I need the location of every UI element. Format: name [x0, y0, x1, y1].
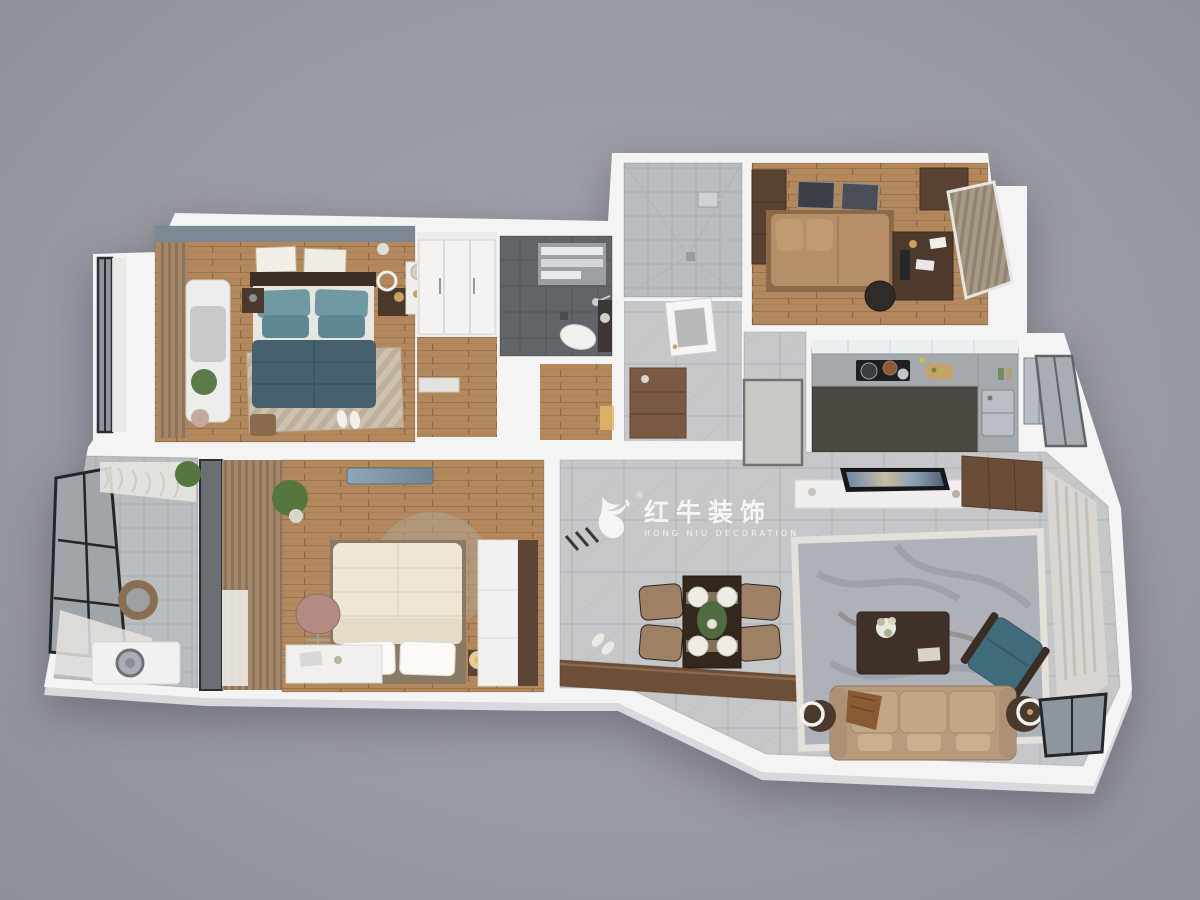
tall-cabinet: [962, 456, 1042, 512]
bottle: [998, 368, 1004, 380]
picture-frame: [304, 248, 347, 274]
vanity-sink: [598, 300, 612, 352]
three-seat-sofa: [830, 686, 1016, 760]
pouf: [191, 409, 209, 427]
plant: [175, 461, 201, 487]
duvet-fold: [333, 618, 462, 644]
window-glass: [200, 460, 222, 690]
wardrobe-doors: [419, 240, 495, 334]
sink: [600, 313, 610, 323]
bay-window: [98, 258, 126, 432]
handle: [439, 278, 441, 294]
dining-chair: [737, 583, 782, 621]
dining-chair: [737, 624, 782, 662]
sheer-curtain: [222, 590, 248, 686]
washer-drum: [125, 658, 135, 668]
shoe-cabinet: [630, 368, 686, 438]
desk-chair: [296, 594, 340, 634]
seat-pillow: [956, 734, 990, 751]
table-top: [857, 612, 949, 674]
lamp-center: [1027, 709, 1033, 715]
pillow: [775, 218, 804, 252]
faucet: [988, 396, 993, 401]
nightstand: [378, 288, 408, 316]
room-entry: [624, 298, 742, 441]
tray-decor: [641, 375, 649, 383]
air-conditioner: [347, 468, 433, 484]
desk-decor: [909, 240, 917, 248]
pillow: [805, 218, 834, 251]
picture-frame: [256, 246, 297, 272]
tan-tatami-bed: [766, 210, 894, 292]
towel: [541, 259, 603, 267]
washer-counter: [92, 642, 180, 684]
pillow-front: [262, 315, 309, 338]
pillow-front: [318, 315, 365, 338]
cooktop: [856, 360, 910, 381]
pillow: [257, 289, 311, 318]
dining-chair: [639, 624, 684, 662]
wardrobe-white: [478, 540, 518, 686]
teal-double-bed: [250, 272, 376, 408]
towel: [541, 271, 581, 279]
wardrobe-wood: [518, 540, 538, 686]
room-master-bathroom: [500, 236, 612, 356]
dining-chair: [639, 583, 684, 621]
sheer-curtain: [112, 258, 126, 432]
shower-column: [724, 226, 730, 250]
gold-decor: [394, 292, 404, 302]
chaise-bench: [186, 280, 230, 427]
pillow: [399, 641, 455, 676]
warm-light: [600, 406, 614, 430]
flowers: [888, 617, 896, 625]
towel: [541, 247, 603, 255]
plant-icon: [191, 369, 217, 395]
basket-cloth: [126, 588, 150, 612]
vanity: [598, 300, 612, 352]
apartment-render-canvas: [0, 0, 1200, 900]
side-table-right: [1006, 696, 1042, 732]
shower-head-square: [698, 192, 718, 207]
vegetable: [932, 368, 937, 373]
basket: [118, 580, 158, 620]
flowers: [877, 618, 885, 626]
entry-floor-inlay: [744, 380, 802, 465]
floor-drain: [560, 312, 568, 320]
plate: [688, 636, 708, 656]
handle: [473, 278, 475, 294]
white-desk: [286, 645, 382, 683]
desk-decor: [334, 656, 342, 664]
coffee-table: [857, 612, 949, 674]
room-shower: [624, 163, 742, 297]
seat-pillow: [907, 734, 941, 751]
floorplan-render: ® 红牛装饰 HONG NIU DECORATION: [0, 0, 1200, 900]
floor-drain: [686, 252, 695, 261]
kettle: [898, 369, 909, 380]
seat-pillow: [858, 734, 892, 751]
upper-cabinets: [812, 340, 1018, 354]
ceiling-lamp: [377, 243, 389, 255]
kitchen-window: [1036, 356, 1086, 446]
room-balcony: [50, 456, 201, 688]
picture-frame: [841, 183, 878, 211]
plant-pot: [289, 509, 303, 523]
board: [925, 363, 953, 380]
room-bedroom-2: [752, 163, 1012, 325]
wood-blinds: [158, 242, 188, 438]
plate: [717, 636, 737, 656]
copper-pot: [883, 361, 897, 375]
back-cushion: [949, 691, 996, 733]
stool: [250, 414, 276, 436]
laptop: [299, 651, 322, 667]
cabinet: [630, 368, 686, 438]
keyboard: [916, 259, 935, 271]
room-bedroom-3: [200, 460, 544, 692]
apartment-plate: [44, 153, 1132, 794]
nightstand-left: [242, 288, 264, 313]
entry-door: [665, 298, 716, 357]
tray: [249, 294, 257, 302]
books: [918, 647, 941, 662]
monitor: [900, 250, 910, 280]
flowers: [884, 629, 892, 637]
console-decor: [952, 490, 960, 498]
vegetable: [920, 358, 925, 363]
chaise-cushion: [190, 306, 226, 362]
wardrobe: [478, 540, 538, 686]
bottle: [1006, 368, 1012, 380]
console-decor: [808, 488, 816, 496]
picture-frame: [798, 181, 835, 208]
office-chair: [865, 281, 895, 311]
door-panel: [674, 308, 708, 348]
pot: [861, 363, 877, 379]
room-walk-in-closet: [417, 232, 497, 437]
room-kitchen: [812, 340, 1086, 452]
headboard: [250, 272, 376, 287]
back-cushion: [900, 691, 947, 733]
low-cabinet: [419, 378, 459, 392]
white-wardrobe: [419, 240, 495, 334]
vase: [707, 619, 717, 629]
vegetable: [940, 371, 945, 376]
tv-screen: [846, 472, 944, 487]
master-accent-wall: [155, 226, 415, 242]
plant-foliage: [272, 480, 308, 516]
master-vestibule: [540, 364, 614, 440]
towel-rack: [538, 243, 606, 285]
pillow: [315, 289, 369, 318]
